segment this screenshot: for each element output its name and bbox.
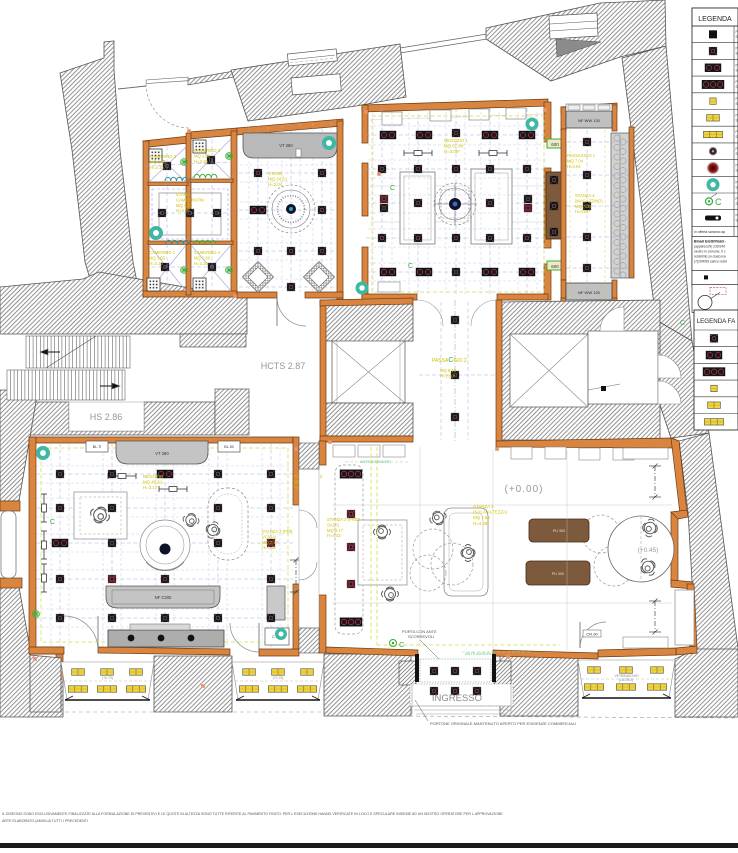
svg-text:LEGENDA FA: LEGENDA FA <box>697 318 736 325</box>
svg-text:ANTE AGGIUNTE: ANTE AGGIUNTE <box>360 460 391 464</box>
svg-text:ARTE ELABORATO (AMIGLIA TUTTI: ARTE ELABORATO (AMIGLIA TUTTI I PRECEDEN… <box>2 819 88 823</box>
svg-text:restelimi) su ciascuna: restelimi) su ciascuna <box>694 254 726 258</box>
svg-text:S: S <box>736 152 738 156</box>
svg-text:S: S <box>736 85 738 89</box>
svg-text:BL.50: BL.50 <box>224 445 233 449</box>
svg-text:S: S <box>736 135 738 139</box>
svg-text:(LUOGO): (LUOGO) <box>619 678 634 682</box>
svg-text:PORTONE ORIGINALE MANTENUTO AP: PORTONE ORIGINALE MANTENUTO APERTO PER E… <box>430 721 576 726</box>
svg-text:P: P <box>736 63 738 67</box>
svg-text:(+0.45): (+0.45) <box>638 547 659 554</box>
svg-text:S: S <box>736 35 738 39</box>
svg-text:(7)200099 carico resid: (7)200099 carico resid <box>694 259 727 263</box>
svg-text:BL.TI: BL.TI <box>93 445 102 449</box>
svg-text:PASSACGIO 2: PASSACGIO 2 <box>432 357 467 364</box>
svg-text:(+0.00): (+0.00) <box>505 484 544 495</box>
svg-text:NF WW 120: NF WW 120 <box>578 118 601 123</box>
svg-text:S: S <box>736 68 738 72</box>
svg-text:PU 300: PU 300 <box>553 529 565 533</box>
svg-text:600: 600 <box>551 264 559 269</box>
svg-text:P: P <box>736 97 738 101</box>
svg-text:P: P <box>736 180 738 184</box>
svg-text:C: C <box>50 519 55 526</box>
svg-text:P: P <box>736 147 738 151</box>
svg-text:INGRESSO: INGRESSO <box>432 693 482 704</box>
svg-text:Binari Elettrificati -: Binari Elettrificati - <box>694 239 727 243</box>
svg-text:VT 260: VT 260 <box>279 143 293 148</box>
svg-text:C: C <box>399 640 405 649</box>
svg-text:S: S <box>736 219 738 223</box>
svg-text:NF WW 120: NF WW 120 <box>578 290 601 295</box>
svg-text:S: S <box>736 52 738 56</box>
svg-text:HCTS 2.87: HCTS 2.87 <box>261 361 306 371</box>
svg-text:LEGENDA: LEGENDA <box>698 16 732 23</box>
svg-text:MQ 8.15H=2.60*: MQ 8.15H=2.60* <box>440 368 457 378</box>
svg-text:C: C <box>390 185 395 192</box>
svg-text:P: P <box>736 114 738 118</box>
svg-text:C: C <box>715 197 722 207</box>
svg-text:S: S <box>736 185 738 189</box>
svg-text:PU 300: PU 300 <box>552 572 564 576</box>
svg-text:(apparecchi) 230/240: (apparecchi) 230/240 <box>694 244 725 248</box>
svg-text:P: P <box>736 197 738 201</box>
svg-text:SCORREVOLI: SCORREVOLI <box>408 634 434 639</box>
svg-text:neutro in comune. Il c: neutro in comune. Il c <box>694 249 726 253</box>
svg-text:CR.90: CR.90 <box>586 632 598 637</box>
svg-text:C: C <box>408 263 413 270</box>
svg-text:S: S <box>736 169 738 173</box>
svg-text:P: P <box>736 164 738 168</box>
svg-text:S: S <box>736 119 738 123</box>
svg-text:HS 2.86: HS 2.86 <box>90 412 123 422</box>
svg-text:(+0.70): (+0.70) <box>102 676 113 680</box>
svg-text:C: C <box>680 320 685 327</box>
svg-text:(+0.70): (+0.70) <box>273 676 284 680</box>
svg-text:VT 260: VT 260 <box>155 451 169 456</box>
svg-text:S: S <box>736 102 738 106</box>
svg-text:IL DISEGNO SONO ESCLUSIVAMENTE: IL DISEGNO SONO ESCLUSIVAMENTE FINALIZZA… <box>2 812 503 816</box>
svg-text:600: 600 <box>551 142 559 147</box>
svg-text:P: P <box>736 30 738 34</box>
svg-text:In offerta saranno ap: In offerta saranno ap <box>694 230 725 234</box>
svg-text:S: S <box>736 202 738 206</box>
svg-text:NF C200: NF C200 <box>155 595 172 600</box>
svg-text:P: P <box>736 214 738 218</box>
svg-text:P: P <box>736 47 738 51</box>
svg-text:P: P <box>736 130 738 134</box>
svg-text:P: P <box>736 80 738 84</box>
svg-text:ANTE AGGIUNTE: ANTE AGGIUNTE <box>465 652 496 656</box>
